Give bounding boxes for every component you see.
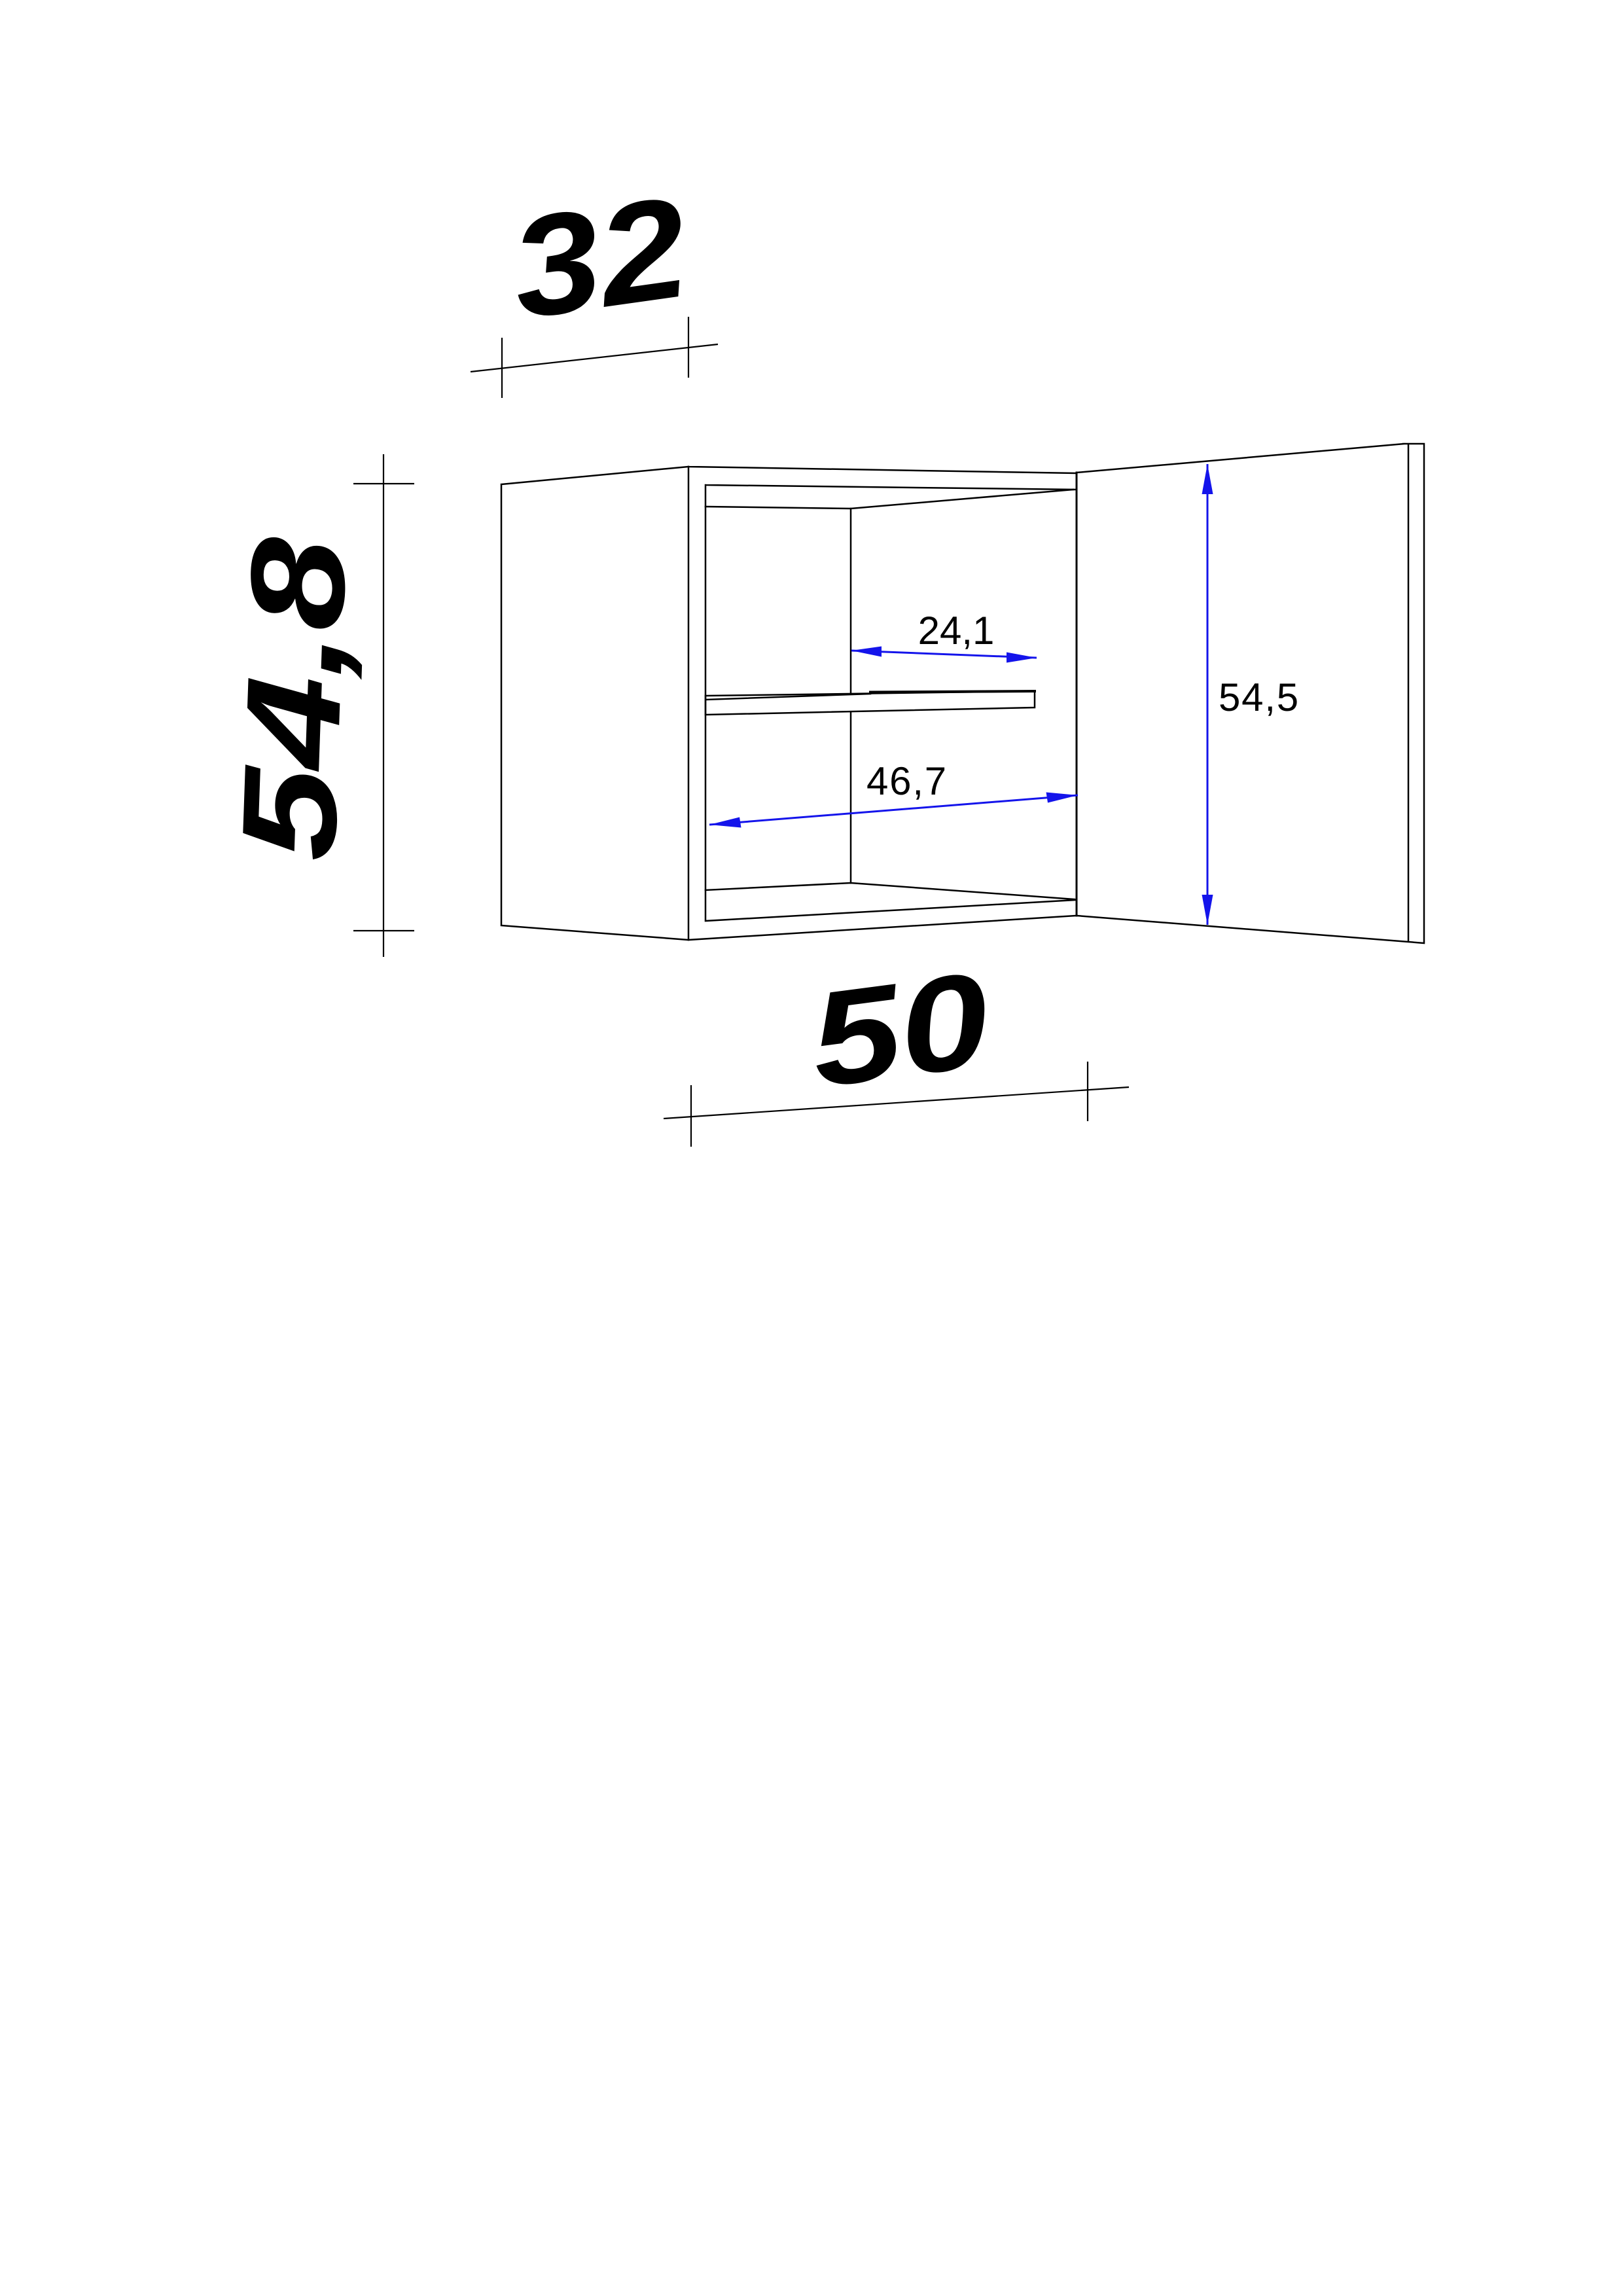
svg-text:32: 32	[502, 167, 696, 349]
svg-text:50: 50	[802, 944, 997, 1116]
svg-text:54,8: 54,8	[213, 535, 374, 863]
svg-text:54,5: 54,5	[1219, 675, 1300, 719]
svg-text:46,7: 46,7	[866, 759, 948, 803]
svg-text:24,1: 24,1	[918, 609, 995, 653]
